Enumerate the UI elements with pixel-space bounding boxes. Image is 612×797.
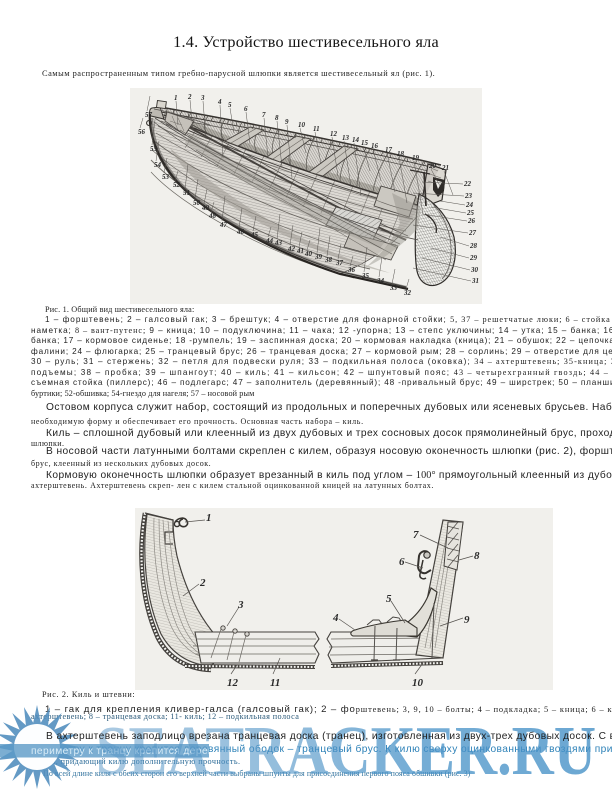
- svg-text:8: 8: [275, 114, 279, 122]
- svg-text:7: 7: [262, 111, 266, 119]
- svg-text:14: 14: [352, 136, 360, 144]
- svg-text:46: 46: [236, 228, 245, 236]
- svg-text:38: 38: [324, 256, 333, 264]
- svg-text:19: 19: [412, 154, 420, 162]
- svg-text:31: 31: [471, 277, 479, 285]
- svg-text:10: 10: [298, 121, 306, 129]
- svg-text:41: 41: [296, 247, 304, 255]
- svg-text:50: 50: [193, 199, 201, 207]
- svg-text:44: 44: [265, 237, 274, 245]
- svg-text:4: 4: [332, 612, 339, 624]
- svg-text:45: 45: [250, 231, 259, 239]
- svg-text:3: 3: [237, 599, 244, 611]
- svg-text:24: 24: [465, 201, 474, 209]
- svg-text:36: 36: [347, 266, 356, 274]
- svg-text:9: 9: [464, 614, 470, 626]
- svg-text:47: 47: [219, 221, 228, 229]
- svg-text:34: 34: [376, 277, 385, 285]
- svg-text:11: 11: [270, 677, 280, 689]
- svg-text:15: 15: [361, 139, 369, 147]
- svg-text:13: 13: [342, 134, 350, 142]
- svg-text:56: 56: [138, 128, 146, 136]
- svg-text:8: 8: [474, 550, 480, 562]
- svg-text:53: 53: [162, 173, 170, 181]
- svg-text:35: 35: [361, 272, 370, 280]
- svg-text:27: 27: [468, 229, 477, 237]
- svg-text:12: 12: [330, 130, 338, 138]
- svg-text:6: 6: [244, 105, 248, 113]
- svg-text:40: 40: [304, 250, 313, 258]
- svg-text:25: 25: [466, 209, 475, 217]
- svg-text:7: 7: [413, 529, 419, 541]
- svg-text:32: 32: [403, 289, 412, 297]
- svg-text:3: 3: [200, 94, 205, 102]
- svg-text:6: 6: [399, 556, 405, 568]
- svg-text:9: 9: [285, 118, 289, 126]
- svg-text:26: 26: [467, 217, 476, 225]
- svg-text:51: 51: [183, 189, 190, 197]
- svg-text:43: 43: [274, 239, 283, 247]
- svg-text:54: 54: [154, 161, 162, 169]
- svg-text:37: 37: [335, 259, 344, 267]
- svg-text:17: 17: [385, 146, 393, 154]
- svg-text:1: 1: [174, 94, 178, 102]
- svg-text:10: 10: [412, 677, 424, 689]
- svg-text:1: 1: [206, 512, 212, 524]
- svg-text:28: 28: [469, 242, 478, 250]
- svg-text:21: 21: [441, 164, 449, 172]
- svg-text:22: 22: [463, 180, 472, 188]
- svg-text:16: 16: [371, 142, 379, 150]
- svg-text:30: 30: [470, 266, 479, 274]
- svg-text:55: 55: [150, 145, 158, 153]
- svg-text:4: 4: [217, 98, 222, 106]
- svg-text:39: 39: [314, 253, 323, 261]
- svg-text:33: 33: [389, 284, 398, 292]
- svg-text:20: 20: [428, 162, 437, 170]
- svg-text:2: 2: [199, 577, 206, 589]
- svg-text:5: 5: [228, 101, 232, 109]
- svg-text:52: 52: [173, 181, 181, 189]
- svg-text:29: 29: [469, 254, 478, 262]
- svg-text:2: 2: [187, 93, 192, 101]
- svg-text:11: 11: [313, 125, 320, 133]
- svg-text:23: 23: [464, 192, 473, 200]
- svg-text:57: 57: [145, 111, 153, 119]
- svg-text:SEATRACKER.RU: SEATRACKER.RU: [96, 713, 596, 790]
- svg-text:18: 18: [397, 150, 405, 158]
- svg-text:49: 49: [201, 204, 210, 212]
- svg-text:12: 12: [227, 677, 239, 689]
- svg-text:42: 42: [287, 245, 296, 253]
- svg-text:5: 5: [386, 593, 392, 605]
- svg-text:48: 48: [208, 212, 217, 220]
